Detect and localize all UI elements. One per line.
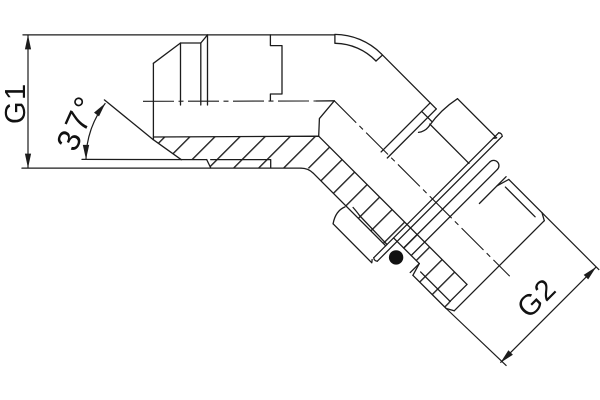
svg-text:37°: 37° [49,89,105,156]
svg-text:G2: G2 [511,272,563,324]
svg-text:G1: G1 [0,82,32,124]
